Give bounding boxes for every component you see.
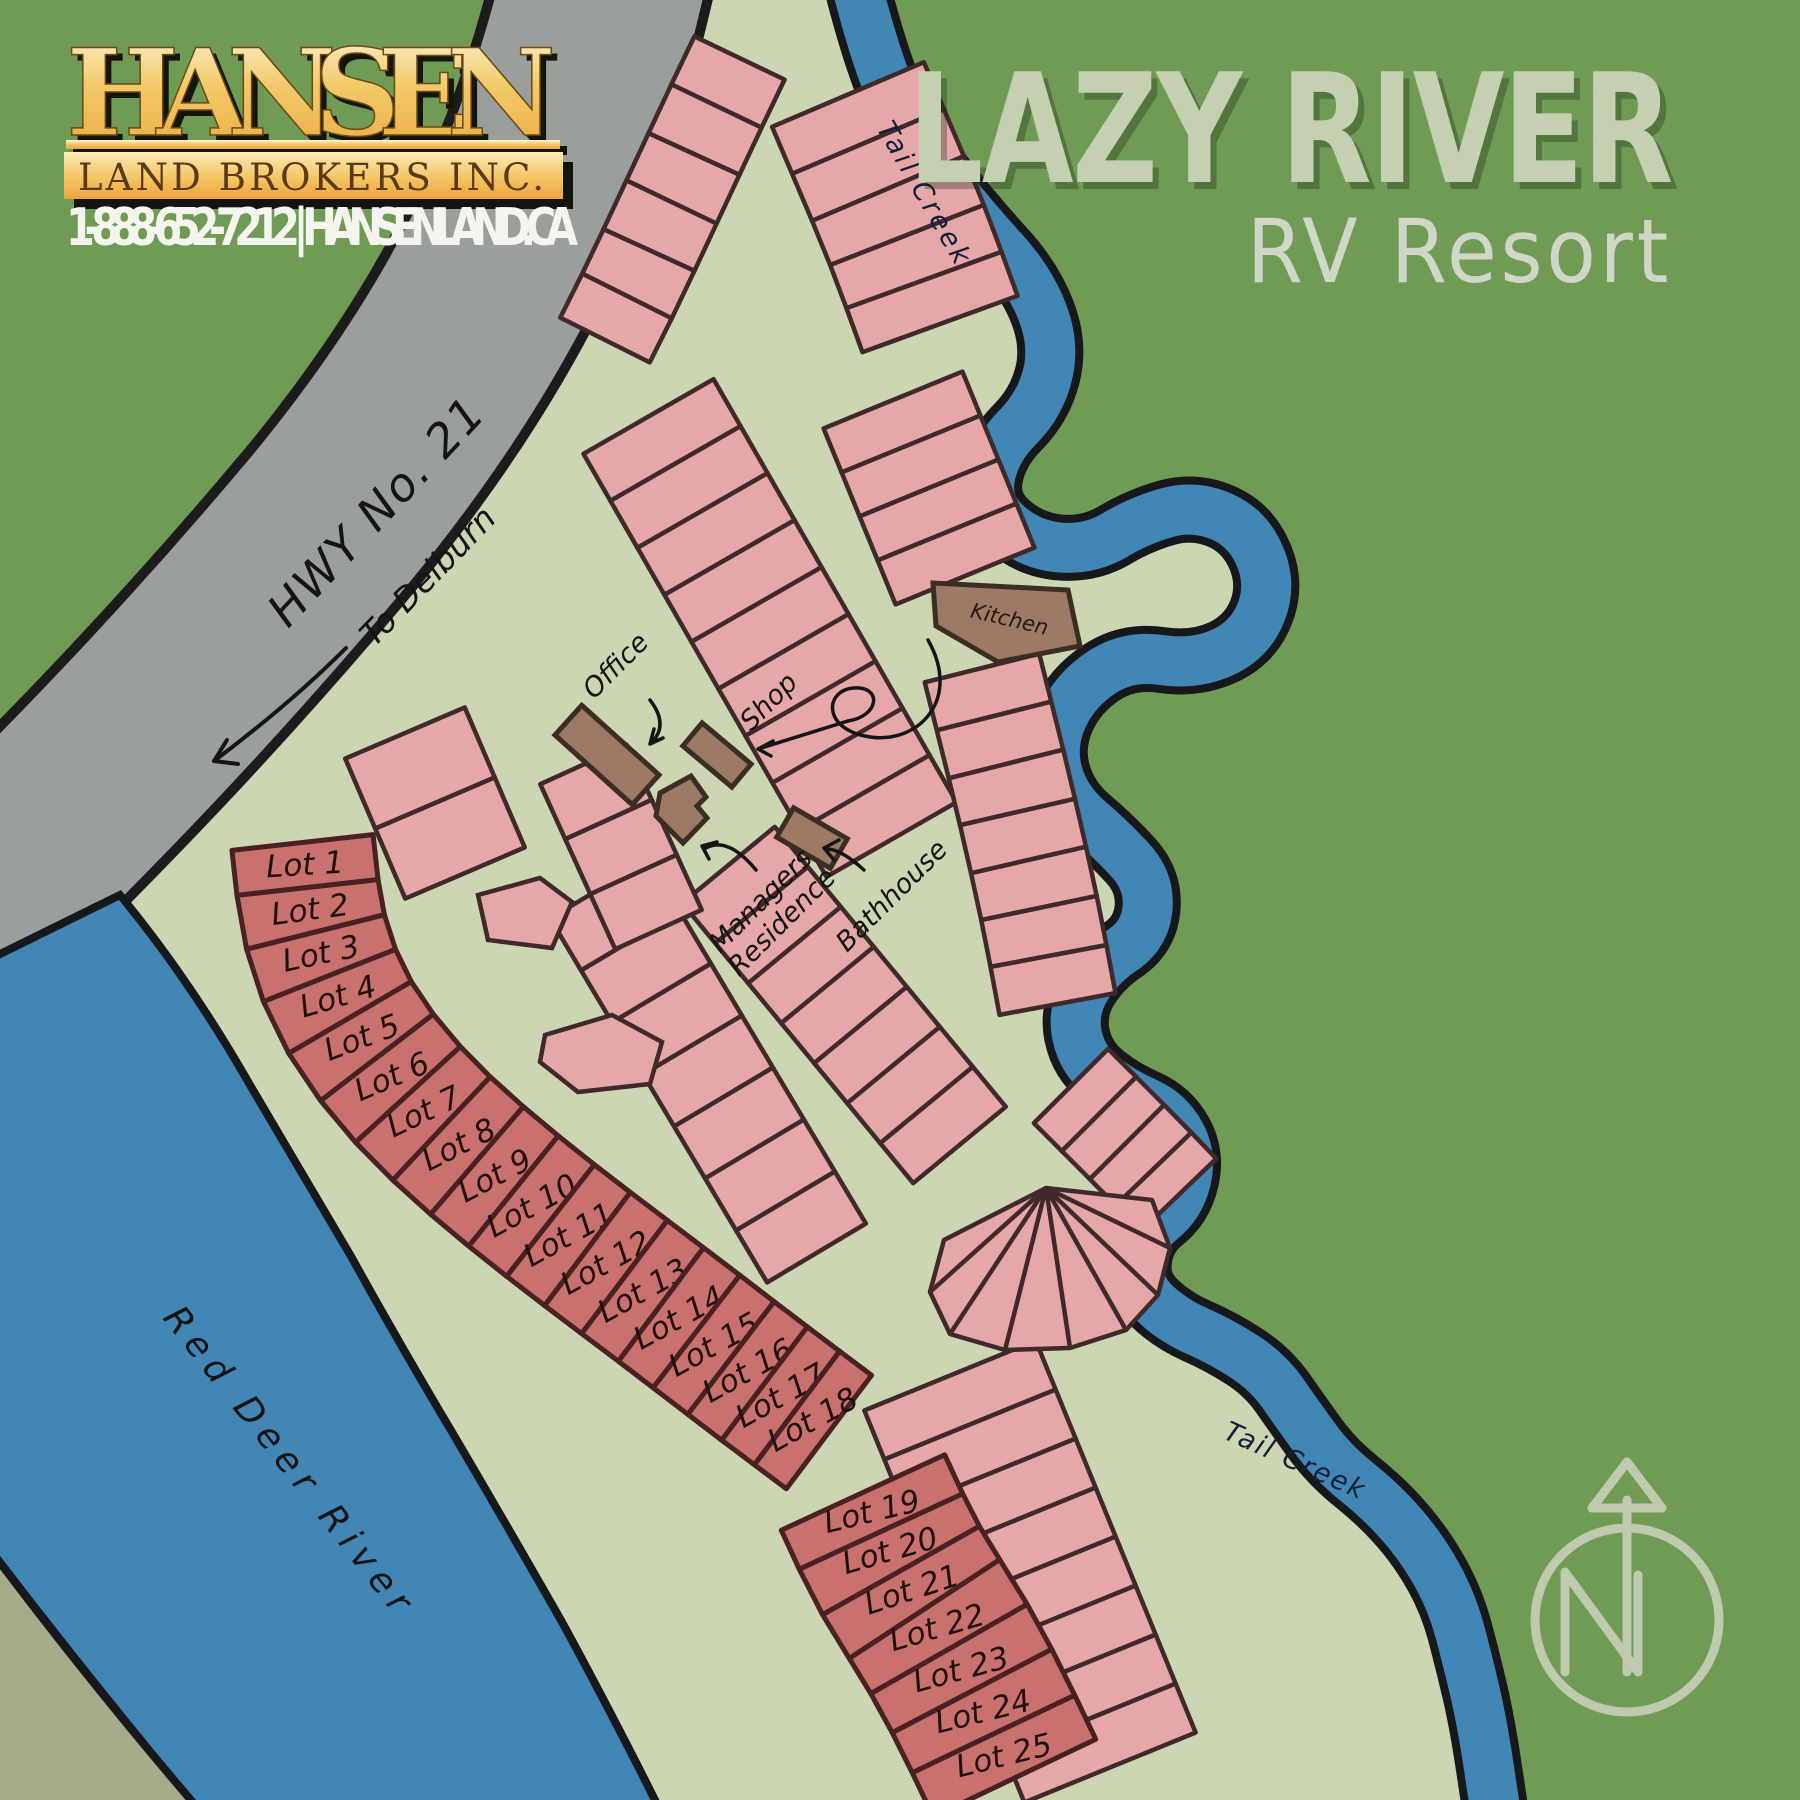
logo-underline xyxy=(66,140,560,149)
broker-logo: HANSEN HANSEN LAND BROKERS INC. 1-888-65… xyxy=(64,23,578,258)
site-plan-poster: Lot 1Lot 2Lot 3Lot 4Lot 5Lot 6Lot 7Lot 8… xyxy=(0,0,1800,1800)
resort-map: Lot 1Lot 2Lot 3Lot 4Lot 5Lot 6Lot 7Lot 8… xyxy=(0,0,1800,1800)
title-line1: LAZY RIVER xyxy=(908,41,1672,218)
title-line2: RV Resort xyxy=(1247,201,1672,303)
logo-tagline: LAND BROKERS INC. xyxy=(78,156,546,199)
lot-label: Lot 1 xyxy=(265,845,345,886)
logo-contact: 1-888-652-7212 | HANSENLAND.CA xyxy=(66,198,578,259)
